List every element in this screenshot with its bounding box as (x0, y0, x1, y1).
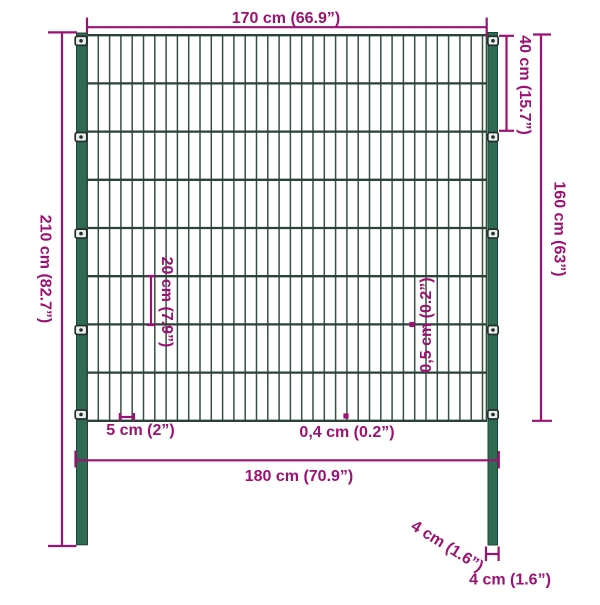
svg-text:0,4 cm (0.2”): 0,4 cm (0.2”) (299, 424, 394, 441)
svg-text:4 cm (1.6”): 4 cm (1.6”) (469, 571, 551, 588)
svg-text:180 cm (70.9”): 180 cm (70.9”) (245, 468, 354, 485)
svg-text:210 cm (82.7”): 210 cm (82.7”) (37, 215, 54, 324)
svg-text:20 cm (7.9”): 20 cm (7.9”) (158, 257, 175, 348)
svg-text:5 cm (2”): 5 cm (2”) (106, 422, 174, 439)
svg-text:170 cm (66.9”): 170 cm (66.9”) (232, 10, 341, 27)
svg-text:160 cm (63”): 160 cm (63”) (551, 181, 568, 276)
svg-text:0,5 cm (0.2”): 0,5 cm (0.2”) (418, 277, 435, 372)
svg-text:40 cm (15.7”): 40 cm (15.7”) (516, 35, 533, 135)
